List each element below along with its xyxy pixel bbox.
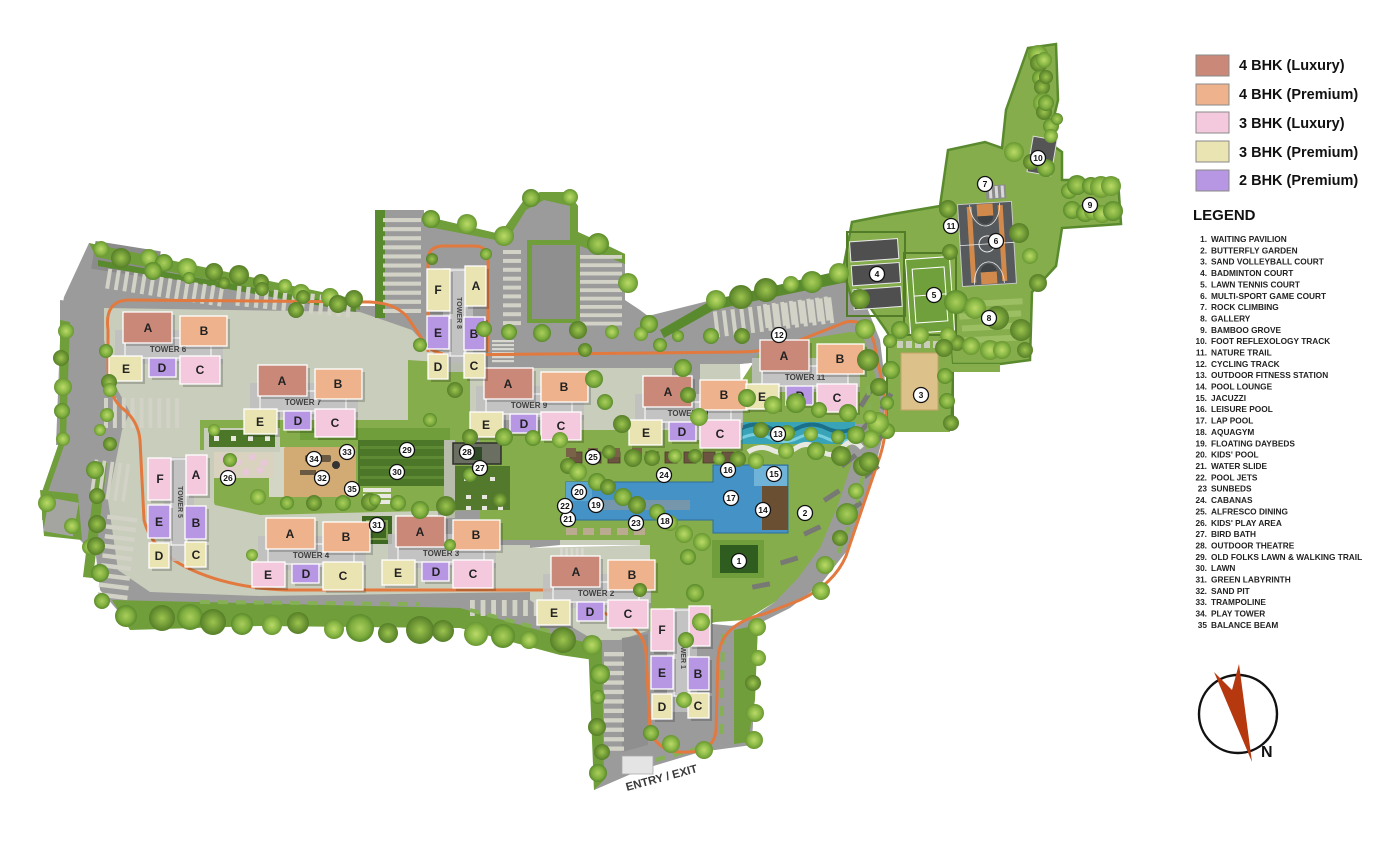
svg-text:GREEN LABYRINTH: GREEN LABYRINTH bbox=[1211, 575, 1291, 585]
svg-text:3 BHK (Premium): 3 BHK (Premium) bbox=[1239, 145, 1358, 161]
svg-text:CABANAS: CABANAS bbox=[1211, 495, 1253, 505]
svg-text:LAWN: LAWN bbox=[1211, 563, 1235, 573]
svg-text:14.: 14. bbox=[1195, 382, 1207, 392]
svg-text:C: C bbox=[694, 699, 703, 713]
svg-text:4 BHK (Luxury): 4 BHK (Luxury) bbox=[1239, 58, 1345, 74]
svg-text:35: 35 bbox=[1198, 620, 1208, 630]
svg-text:7: 7 bbox=[983, 179, 988, 189]
svg-text:D: D bbox=[520, 417, 529, 431]
svg-text:LAP POOL: LAP POOL bbox=[1211, 416, 1253, 426]
svg-text:BUTTERFLY GARDEN: BUTTERFLY GARDEN bbox=[1211, 245, 1298, 255]
svg-text:10: 10 bbox=[1033, 153, 1043, 163]
svg-text:C: C bbox=[196, 363, 205, 377]
svg-text:WAITING PAVILION: WAITING PAVILION bbox=[1211, 234, 1287, 244]
svg-text:34: 34 bbox=[309, 454, 319, 464]
svg-text:GALLERY: GALLERY bbox=[1211, 313, 1251, 323]
svg-text:A: A bbox=[780, 349, 789, 363]
svg-text:SUNBEDS: SUNBEDS bbox=[1211, 484, 1252, 494]
svg-text:ALFRESCO DINING: ALFRESCO DINING bbox=[1211, 506, 1288, 516]
svg-text:21: 21 bbox=[563, 514, 573, 524]
svg-text:N: N bbox=[1261, 744, 1273, 761]
svg-text:E: E bbox=[394, 566, 402, 580]
svg-text:C: C bbox=[339, 569, 348, 583]
svg-text:D: D bbox=[678, 425, 687, 439]
svg-text:D: D bbox=[155, 549, 164, 563]
svg-text:24: 24 bbox=[659, 470, 669, 480]
svg-text:C: C bbox=[716, 427, 725, 441]
svg-text:D: D bbox=[294, 414, 303, 428]
svg-text:A: A bbox=[144, 321, 153, 335]
svg-text:23: 23 bbox=[1198, 484, 1208, 494]
svg-text:5: 5 bbox=[932, 290, 937, 300]
svg-text:A: A bbox=[504, 377, 513, 391]
svg-text:1: 1 bbox=[737, 556, 742, 566]
svg-text:26: 26 bbox=[223, 473, 233, 483]
svg-text:10.: 10. bbox=[1195, 336, 1207, 346]
svg-text:F: F bbox=[658, 623, 665, 637]
svg-text:6: 6 bbox=[994, 236, 999, 246]
svg-text:B: B bbox=[560, 380, 569, 394]
svg-text:16.: 16. bbox=[1195, 404, 1207, 414]
svg-text:B: B bbox=[472, 528, 481, 542]
svg-text:A: A bbox=[664, 385, 673, 399]
svg-text:15.: 15. bbox=[1195, 393, 1207, 403]
svg-text:5.: 5. bbox=[1200, 279, 1207, 289]
svg-text:4 BHK (Premium): 4 BHK (Premium) bbox=[1239, 87, 1358, 103]
svg-text:D: D bbox=[586, 605, 595, 619]
svg-text:POOL LOUNGE: POOL LOUNGE bbox=[1211, 382, 1273, 392]
svg-text:B: B bbox=[342, 530, 351, 544]
svg-text:D: D bbox=[302, 567, 311, 581]
svg-text:AQUAGYM: AQUAGYM bbox=[1211, 427, 1254, 437]
svg-text:9.: 9. bbox=[1200, 325, 1207, 335]
svg-text:E: E bbox=[122, 362, 130, 376]
svg-text:BALANCE BEAM: BALANCE BEAM bbox=[1211, 620, 1278, 630]
svg-text:LAWN TENNIS COURT: LAWN TENNIS COURT bbox=[1211, 279, 1300, 289]
svg-text:35: 35 bbox=[347, 484, 357, 494]
svg-text:27: 27 bbox=[475, 463, 485, 473]
svg-text:ROCK CLIMBING: ROCK CLIMBING bbox=[1211, 302, 1279, 312]
svg-text:FLOATING DAYBEDS: FLOATING DAYBEDS bbox=[1211, 438, 1295, 448]
svg-text:C: C bbox=[470, 359, 479, 373]
svg-text:A: A bbox=[572, 565, 581, 579]
svg-text:LEGEND: LEGEND bbox=[1193, 207, 1256, 224]
svg-text:28: 28 bbox=[462, 447, 472, 457]
svg-text:B: B bbox=[628, 568, 637, 582]
svg-text:12.: 12. bbox=[1195, 359, 1207, 369]
svg-text:E: E bbox=[256, 415, 264, 429]
svg-text:1.: 1. bbox=[1200, 234, 1207, 244]
svg-text:A: A bbox=[416, 525, 425, 539]
svg-text:A: A bbox=[286, 527, 295, 541]
svg-text:E: E bbox=[155, 515, 163, 529]
svg-text:BIRD BATH: BIRD BATH bbox=[1211, 529, 1256, 539]
svg-text:JACUZZI: JACUZZI bbox=[1211, 393, 1246, 403]
svg-text:34.: 34. bbox=[1195, 609, 1207, 619]
svg-text:C: C bbox=[192, 548, 201, 562]
svg-text:D: D bbox=[434, 360, 443, 374]
svg-text:8.: 8. bbox=[1200, 313, 1207, 323]
svg-text:PLAY TOWER: PLAY TOWER bbox=[1211, 609, 1265, 619]
svg-text:2: 2 bbox=[803, 508, 808, 518]
svg-text:C: C bbox=[469, 567, 478, 581]
svg-text:B: B bbox=[192, 516, 201, 530]
svg-text:TRAMPOLINE: TRAMPOLINE bbox=[1211, 597, 1266, 607]
svg-text:A: A bbox=[278, 374, 287, 388]
svg-text:18.: 18. bbox=[1195, 427, 1207, 437]
svg-text:13.: 13. bbox=[1195, 370, 1207, 380]
svg-text:27.: 27. bbox=[1195, 529, 1207, 539]
svg-text:B: B bbox=[694, 667, 703, 681]
svg-text:B: B bbox=[334, 377, 343, 391]
svg-text:B: B bbox=[200, 324, 209, 338]
svg-text:22.: 22. bbox=[1195, 472, 1207, 482]
svg-text:CYCLING TRACK: CYCLING TRACK bbox=[1211, 359, 1280, 369]
svg-text:NATURE TRAIL: NATURE TRAIL bbox=[1211, 348, 1272, 358]
svg-text:11: 11 bbox=[947, 221, 956, 231]
svg-text:TOWER 8: TOWER 8 bbox=[455, 297, 462, 329]
svg-text:28.: 28. bbox=[1195, 541, 1207, 551]
svg-text:14: 14 bbox=[758, 505, 768, 515]
svg-text:E: E bbox=[550, 606, 558, 620]
svg-text:19: 19 bbox=[591, 500, 601, 510]
svg-text:C: C bbox=[833, 391, 842, 405]
svg-text:3: 3 bbox=[919, 390, 924, 400]
svg-text:21.: 21. bbox=[1195, 461, 1207, 471]
svg-text:19.: 19. bbox=[1195, 438, 1207, 448]
svg-text:MULTI-SPORT GAME COURT: MULTI-SPORT GAME COURT bbox=[1211, 291, 1326, 301]
svg-text:F: F bbox=[156, 472, 163, 486]
svg-text:20.: 20. bbox=[1195, 450, 1207, 460]
svg-text:E: E bbox=[264, 568, 272, 582]
svg-text:B: B bbox=[720, 388, 729, 402]
svg-text:18: 18 bbox=[660, 516, 670, 526]
svg-text:12: 12 bbox=[774, 330, 784, 340]
svg-text:D: D bbox=[432, 565, 441, 579]
svg-text:2.: 2. bbox=[1200, 245, 1207, 255]
svg-text:31.: 31. bbox=[1195, 575, 1207, 585]
svg-text:11.: 11. bbox=[1196, 348, 1207, 358]
svg-text:A: A bbox=[472, 279, 481, 293]
svg-text:WATER SLIDE: WATER SLIDE bbox=[1211, 461, 1268, 471]
svg-text:13: 13 bbox=[773, 429, 783, 439]
svg-text:KIDS' PLAY AREA: KIDS' PLAY AREA bbox=[1211, 518, 1282, 528]
svg-text:25: 25 bbox=[588, 452, 598, 462]
svg-text:26.: 26. bbox=[1195, 518, 1207, 528]
svg-text:C: C bbox=[624, 607, 633, 621]
svg-text:32.: 32. bbox=[1195, 586, 1207, 596]
svg-text:OUTDOOR THEATRE: OUTDOOR THEATRE bbox=[1211, 541, 1295, 551]
svg-text:17: 17 bbox=[726, 493, 736, 503]
svg-text:4: 4 bbox=[875, 269, 880, 279]
svg-text:32: 32 bbox=[317, 473, 327, 483]
svg-text:22: 22 bbox=[560, 501, 570, 511]
svg-text:24.: 24. bbox=[1195, 495, 1207, 505]
svg-text:C: C bbox=[557, 419, 566, 433]
svg-text:C: C bbox=[331, 416, 340, 430]
svg-text:33: 33 bbox=[342, 447, 352, 457]
svg-text:30: 30 bbox=[392, 467, 402, 477]
svg-text:15: 15 bbox=[769, 469, 779, 479]
svg-text:OUTDOOR FITNESS STATION: OUTDOOR FITNESS STATION bbox=[1211, 370, 1328, 380]
svg-text:POOL JETS: POOL JETS bbox=[1211, 472, 1258, 482]
svg-text:E: E bbox=[482, 418, 490, 432]
svg-text:SAND PIT: SAND PIT bbox=[1211, 586, 1250, 596]
svg-text:E: E bbox=[642, 426, 650, 440]
svg-text:9: 9 bbox=[1088, 200, 1093, 210]
svg-text:KIDS' POOL: KIDS' POOL bbox=[1211, 450, 1259, 460]
svg-text:29: 29 bbox=[402, 445, 412, 455]
svg-text:2 BHK (Premium): 2 BHK (Premium) bbox=[1239, 173, 1358, 189]
svg-text:7.: 7. bbox=[1200, 302, 1207, 312]
svg-text:F: F bbox=[434, 283, 441, 297]
svg-text:3.: 3. bbox=[1200, 257, 1207, 267]
svg-text:25.: 25. bbox=[1195, 506, 1207, 516]
svg-text:29.: 29. bbox=[1195, 552, 1207, 562]
svg-text:30.: 30. bbox=[1195, 563, 1207, 573]
svg-text:OLD FOLKS LAWN & WALKING TRAIL: OLD FOLKS LAWN & WALKING TRAIL bbox=[1211, 552, 1362, 562]
svg-text:BAMBOO GROVE: BAMBOO GROVE bbox=[1211, 325, 1282, 335]
svg-text:33.: 33. bbox=[1195, 597, 1207, 607]
svg-text:E: E bbox=[434, 326, 442, 340]
svg-text:3 BHK (Luxury): 3 BHK (Luxury) bbox=[1239, 116, 1345, 132]
svg-text:TOWER 5: TOWER 5 bbox=[176, 486, 183, 518]
svg-text:17.: 17. bbox=[1195, 416, 1207, 426]
svg-text:6.: 6. bbox=[1200, 291, 1207, 301]
svg-text:FOOT REFLEXOLOGY TRACK: FOOT REFLEXOLOGY TRACK bbox=[1211, 336, 1330, 346]
svg-text:E: E bbox=[658, 666, 666, 680]
svg-text:LEISURE POOL: LEISURE POOL bbox=[1211, 404, 1273, 414]
svg-text:23: 23 bbox=[631, 518, 641, 528]
svg-text:D: D bbox=[158, 361, 167, 375]
svg-text:A: A bbox=[192, 468, 201, 482]
svg-text:BADMINTON COURT: BADMINTON COURT bbox=[1211, 268, 1293, 278]
svg-text:20: 20 bbox=[574, 487, 584, 497]
svg-text:D: D bbox=[658, 700, 667, 714]
svg-text:4.: 4. bbox=[1200, 268, 1207, 278]
svg-text:31: 31 bbox=[372, 520, 382, 530]
svg-text:16: 16 bbox=[723, 465, 733, 475]
svg-text:B: B bbox=[836, 352, 845, 366]
svg-text:SAND VOLLEYBALL COURT: SAND VOLLEYBALL COURT bbox=[1211, 257, 1324, 267]
svg-text:8: 8 bbox=[987, 313, 992, 323]
